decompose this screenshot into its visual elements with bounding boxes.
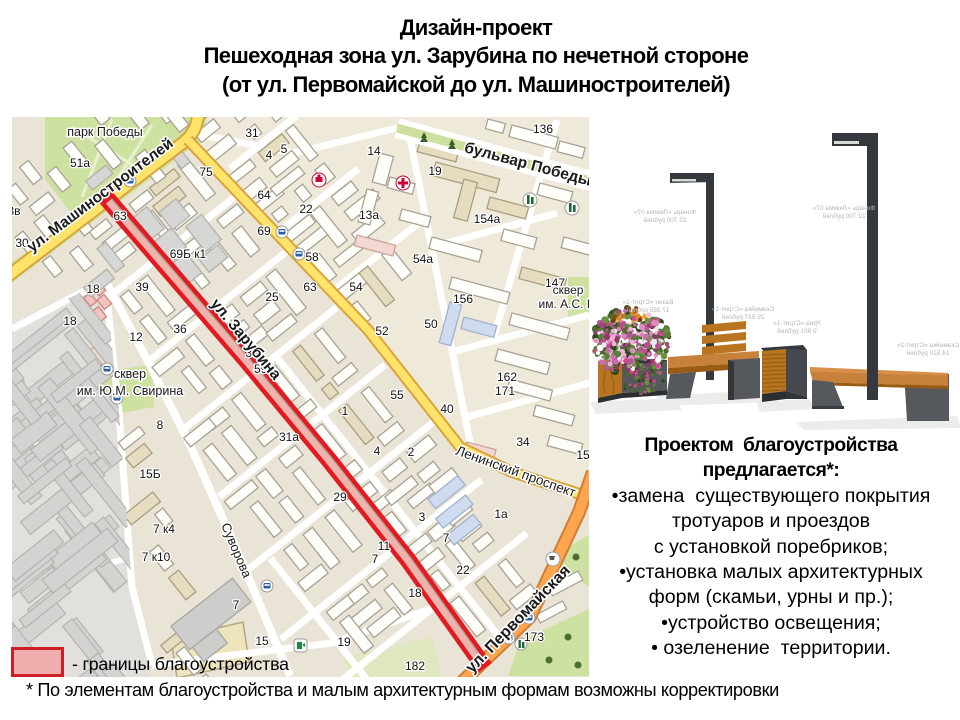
svg-text:7: 7 xyxy=(372,552,379,566)
svg-text:Вазон «Стрит-1»: Вазон «Стрит-1» xyxy=(622,299,673,306)
svg-text:50: 50 xyxy=(424,317,438,331)
svg-text:19: 19 xyxy=(337,635,351,649)
svg-text:сквер: сквер xyxy=(553,283,584,297)
svg-text:51a: 51a xyxy=(70,156,90,170)
svg-text:63: 63 xyxy=(113,209,127,223)
svg-text:13a: 13a xyxy=(359,208,379,222)
svg-text:22 700 рублей: 22 700 рублей xyxy=(643,216,686,224)
svg-text:69Б к1: 69Б к1 xyxy=(170,247,207,261)
svg-text:75: 75 xyxy=(199,165,213,179)
svg-text:4: 4 xyxy=(266,148,273,162)
svg-text:64: 64 xyxy=(257,188,271,202)
svg-text:14: 14 xyxy=(367,144,381,158)
svg-text:40: 40 xyxy=(440,402,454,416)
svg-text:162: 162 xyxy=(497,370,517,384)
svg-text:9 901 рублей: 9 901 рублей xyxy=(777,327,817,335)
svg-text:Урна «Стрит-1»: Урна «Стрит-1» xyxy=(773,320,821,327)
svg-text:15: 15 xyxy=(255,634,269,648)
svg-text:1a: 1a xyxy=(494,507,508,521)
svg-text:182: 182 xyxy=(405,659,425,673)
svg-text:5: 5 xyxy=(281,142,288,156)
svg-text:22: 22 xyxy=(456,563,470,577)
svg-text:им. А.С. Пу: им. А.С. Пу xyxy=(539,297,589,311)
svg-text:154a: 154a xyxy=(474,212,501,226)
svg-text:63: 63 xyxy=(303,280,317,294)
svg-text:18: 18 xyxy=(63,314,77,328)
svg-text:22 700 рублей: 22 700 рублей xyxy=(822,212,865,220)
svg-text:7: 7 xyxy=(443,531,450,545)
svg-text:31a: 31a xyxy=(279,430,299,444)
svg-text:7 к4: 7 к4 xyxy=(153,522,175,536)
svg-text:31: 31 xyxy=(245,126,259,140)
svg-text:69: 69 xyxy=(257,224,271,238)
svg-text:3: 3 xyxy=(419,510,426,524)
svg-text:136: 136 xyxy=(533,122,553,136)
svg-text:2: 2 xyxy=(408,445,415,459)
svg-text:7: 7 xyxy=(233,598,240,612)
svg-text:15Б: 15Б xyxy=(139,467,160,481)
svg-text:55: 55 xyxy=(390,388,404,402)
svg-text:8: 8 xyxy=(157,418,164,432)
svg-text:12: 12 xyxy=(129,330,143,344)
svg-text:4: 4 xyxy=(374,444,381,458)
svg-text:36: 36 xyxy=(173,322,187,336)
svg-text:7 к10: 7 к10 xyxy=(142,550,171,564)
svg-text:52: 52 xyxy=(375,324,389,338)
svg-text:25 937 рублей: 25 937 рублей xyxy=(721,313,764,321)
svg-text:173: 173 xyxy=(524,630,544,644)
svg-text:1: 1 xyxy=(342,404,349,418)
svg-text:19: 19 xyxy=(428,164,442,178)
svg-text:34: 34 xyxy=(516,435,530,449)
svg-text:54a: 54a xyxy=(413,252,433,266)
svg-text:54: 54 xyxy=(349,280,363,294)
svg-text:171: 171 xyxy=(495,384,515,398)
svg-text:25: 25 xyxy=(265,290,279,304)
svg-text:Фонарь «Люмма 07»: Фонарь «Люмма 07» xyxy=(633,209,696,216)
svg-text:Фонарь «Люмма 07»: Фонарь «Люмма 07» xyxy=(812,205,875,212)
svg-text:58: 58 xyxy=(305,250,319,264)
svg-text:14 520 рублей: 14 520 рублей xyxy=(906,349,949,357)
svg-text:29: 29 xyxy=(333,490,347,504)
svg-text:им. Ю.М. Свирина: им. Ю.М. Свирина xyxy=(77,384,183,398)
svg-text:39: 39 xyxy=(135,280,149,294)
svg-text:22: 22 xyxy=(299,202,313,216)
svg-text:18: 18 xyxy=(408,586,422,600)
svg-text:Скамейка «Стрит-1»: Скамейка «Стрит-1» xyxy=(711,305,774,313)
svg-text:18: 18 xyxy=(86,282,100,296)
svg-text:11: 11 xyxy=(378,539,391,553)
svg-text:156: 156 xyxy=(453,292,473,306)
svg-text:парк Победы: парк Победы xyxy=(67,125,143,139)
svg-text:17 365 рублей: 17 365 рублей xyxy=(626,306,669,314)
svg-text:Скамейка «Стрит-2»: Скамейка «Стрит-2» xyxy=(896,341,959,349)
svg-text:сквер: сквер xyxy=(114,367,146,381)
svg-text:3в: 3в xyxy=(12,204,21,218)
